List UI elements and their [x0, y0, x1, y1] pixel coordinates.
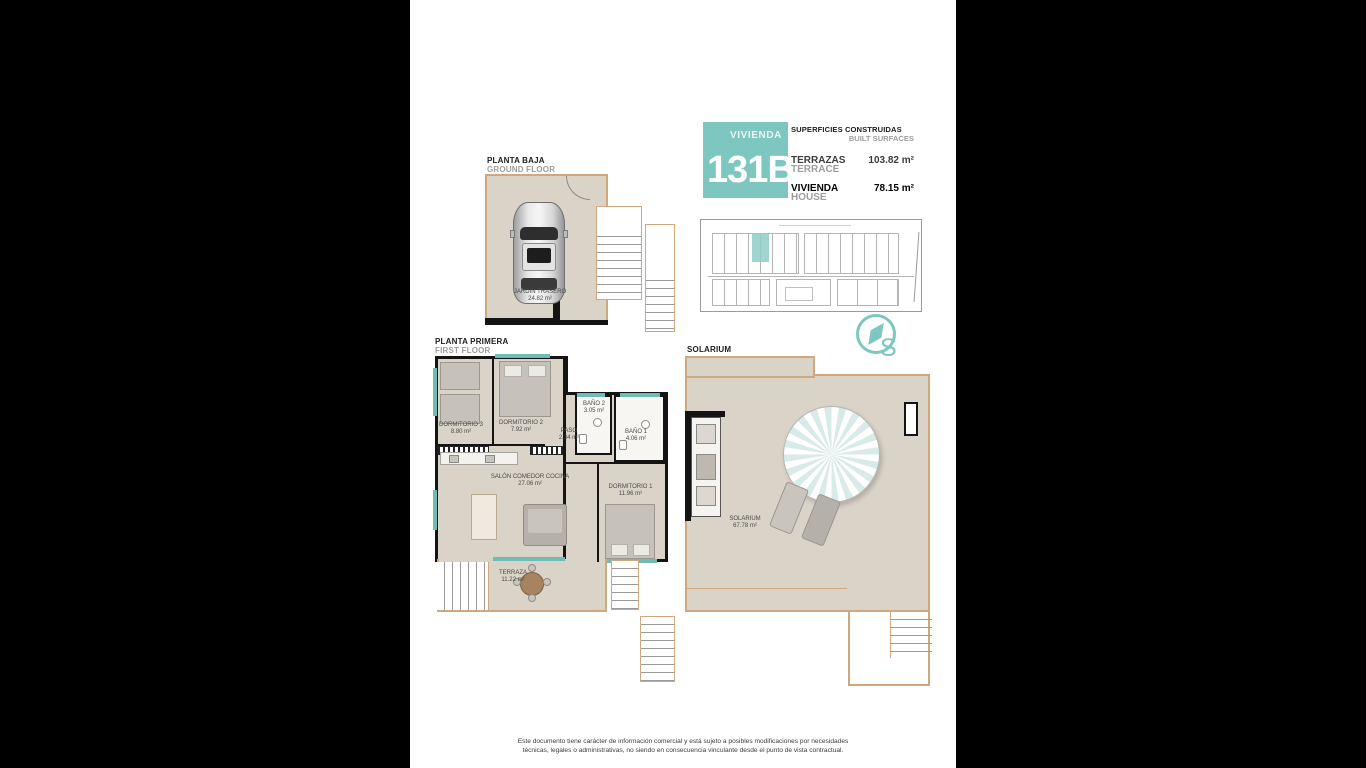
room-label-bano-1: BAÑO 1 4.06 m² [611, 429, 661, 443]
pillow [528, 365, 546, 377]
screenshot-canvas: VIVIENDA 131B SUPERFICIES CONSTRUIDAS BU… [0, 0, 1366, 768]
window [495, 354, 550, 358]
first-floor-title-es: PLANTA PRIMERA [435, 337, 508, 346]
site-plan-boundary [914, 232, 920, 302]
disclaimer-line-1: Este documento tiene carácter de informa… [493, 737, 873, 746]
sofa [523, 504, 567, 546]
car-windshield [520, 227, 558, 240]
pillow [633, 544, 650, 556]
highlighted-unit-marker [752, 233, 769, 262]
sink [593, 418, 602, 427]
unit-title-box: VIVIENDA 131B [703, 122, 788, 198]
terrace-chair [528, 594, 536, 602]
surfaces-title-en: BUILT SURFACES [791, 134, 914, 143]
double-bed [605, 504, 655, 559]
double-bed [499, 361, 551, 417]
stairs [437, 562, 489, 610]
stair-steps [890, 612, 932, 658]
stair-steps [437, 562, 488, 610]
surfaces-title-es: SUPERFICIES CONSTRUIDAS [791, 125, 914, 134]
site-plan-road [708, 276, 914, 277]
wall [485, 318, 557, 325]
site-plan-units-row [712, 279, 770, 306]
stair-steps [597, 229, 641, 299]
solarium-plan: SOLARIUM 67.78 m² [685, 356, 930, 612]
stair-steps [641, 617, 674, 681]
stairs [596, 206, 642, 300]
wall [548, 320, 608, 325]
kitchen-sink [449, 455, 459, 463]
kitchen-hob [485, 455, 495, 463]
site-plan-key [700, 219, 922, 312]
car-mirror [510, 230, 515, 238]
room-label-jardin-trasero: JARDIN TRASERO 24.82 m² [505, 289, 575, 303]
document-page: VIVIENDA 131B SUPERFICIES CONSTRUIDAS BU… [410, 0, 956, 768]
stairs [611, 560, 639, 610]
solarium-title: SOLARIUM [687, 345, 731, 354]
car-sunroof [527, 248, 551, 263]
unit-label: VIVIENDA [730, 130, 782, 141]
ground-floor-title: PLANTA BAJA GROUND FLOOR [487, 156, 555, 174]
terrazas-value: 103.82 m² [868, 155, 914, 166]
room-label-bano-2: BAÑO 2 3.05 m² [570, 401, 618, 415]
wall [597, 462, 599, 562]
legal-disclaimer: Este documento tiene carácter de informa… [493, 737, 873, 755]
outdoor-cabinet [696, 486, 716, 506]
bed [440, 362, 480, 390]
solarium-title-label: SOLARIUM [687, 345, 731, 354]
pillow [504, 365, 522, 377]
ground-floor-title-es: PLANTA BAJA [487, 156, 555, 165]
bed [440, 394, 480, 424]
utility-box [904, 402, 918, 436]
stairs [848, 612, 930, 686]
window [433, 368, 437, 416]
disclaimer-line-2: técnicas, legales o administrativas, no … [493, 746, 873, 755]
site-plan-units-row [837, 279, 899, 306]
room-label-dormitorio-2: DORMITORIO 2 7.92 m² [496, 420, 546, 434]
wardrobe [530, 446, 563, 455]
site-plan-street-line [779, 225, 851, 226]
pillow [611, 544, 628, 556]
room-label-paso: PASO 2.34 m² [544, 428, 594, 442]
room-label-salon: SALÓN COMEDOR COCINA 27.06 m² [490, 474, 570, 488]
floor-area [685, 356, 815, 378]
sink [641, 420, 650, 429]
window [620, 393, 660, 397]
wall [492, 356, 494, 444]
unit-number: 131B [707, 149, 794, 192]
vivienda-value: 78.15 m² [874, 183, 914, 194]
kitchen-counter [440, 452, 518, 465]
site-plan-pool-area [776, 279, 831, 306]
car-mirror [563, 230, 568, 238]
stair-steps [646, 273, 674, 331]
first-floor-plan: DORMITORIO 3 8.80 m² DORMITORIO 2 7.92 m… [435, 356, 675, 614]
terrace-chair [543, 578, 551, 586]
stair-steps [612, 561, 638, 609]
ground-floor-title-en: GROUND FLOOR [487, 165, 555, 174]
door-swing-arc [566, 176, 590, 200]
sliding-door [493, 557, 565, 561]
dining-table [471, 494, 497, 540]
window [577, 393, 605, 397]
room-label-dormitorio-3: DORMITORIO 3 8.80 m² [436, 422, 486, 436]
wall [565, 462, 668, 464]
first-floor-title: PLANTA PRIMERA FIRST FLOOR [435, 337, 508, 355]
terrace-edge-line [687, 588, 847, 589]
room-label-terraza: TERRAZA 11.22 m² [483, 570, 543, 584]
window [433, 490, 437, 530]
outdoor-kitchen [691, 417, 721, 517]
room-label-solarium: SOLARIUM 67.78 m² [715, 516, 775, 530]
room-label-dormitorio-1: DORMITORIO 1 11.96 m² [603, 484, 658, 498]
stairs [645, 224, 675, 332]
stairs [640, 616, 675, 682]
outdoor-sink [696, 424, 716, 444]
site-plan-units-row [804, 233, 899, 274]
built-surfaces-table: SUPERFICIES CONSTRUIDAS BUILT SURFACES T… [791, 125, 914, 211]
outdoor-grill [696, 454, 716, 480]
